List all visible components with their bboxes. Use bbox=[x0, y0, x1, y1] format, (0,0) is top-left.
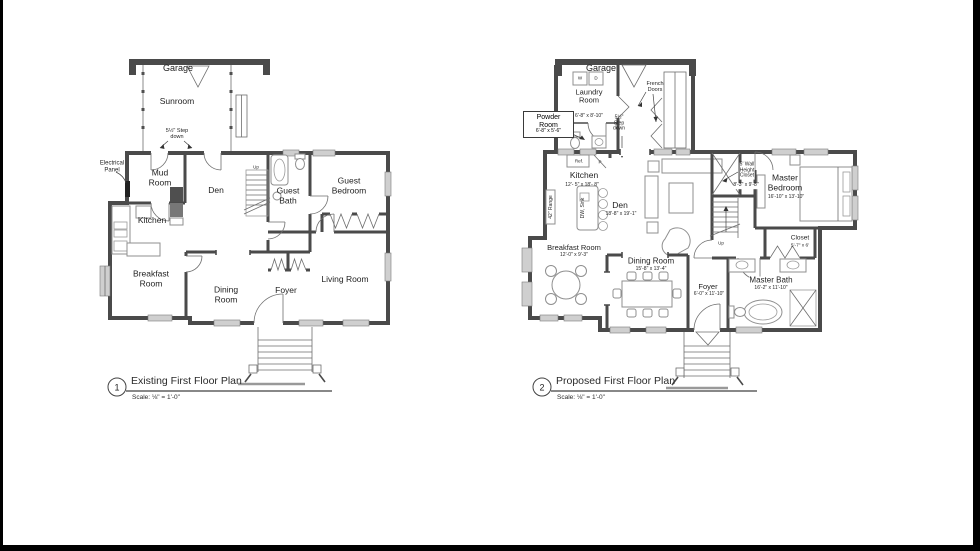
appliance-label-dryer: D bbox=[594, 75, 597, 80]
sheet-border-right bbox=[973, 0, 980, 551]
plan-number-badge-existing: 1 bbox=[108, 378, 127, 397]
dim-label-dining: 15'-8" x 13'-4" bbox=[636, 267, 667, 273]
room-label-dining-proposed: Dining Room bbox=[628, 258, 674, 267]
room-label-breakfast-existing: Breakfast Room bbox=[133, 269, 169, 288]
annotation-step-down-existing: 5½" Step down bbox=[166, 128, 188, 140]
appliance-label-dw-sink: DW, Sink bbox=[581, 198, 587, 219]
annotation-up-existing: Up bbox=[253, 164, 259, 169]
appliance-label-range: 42" Range bbox=[549, 195, 555, 218]
room-label-breakfast-proposed: Breakfast Room bbox=[547, 244, 601, 252]
room-label-powder-room: Powder Room bbox=[525, 114, 572, 129]
room-label-den-existing: Den bbox=[208, 186, 224, 196]
annotation-step-down-proposed: 5½" Step down bbox=[613, 116, 625, 133]
room-label-kitchen-existing: Kitchen bbox=[138, 216, 166, 226]
room-label-master-bedroom: Master Bedroom bbox=[768, 173, 803, 192]
appliance-label-pantry: P bbox=[598, 159, 601, 164]
plan-title-proposed: Proposed First Floor Plan bbox=[556, 375, 675, 387]
room-label-guest-bath: Guest Bath bbox=[277, 186, 300, 205]
room-label-master-bath: Master Bath bbox=[749, 277, 792, 286]
dim-label-kitchen: 12'- 5" x 18'- 8" bbox=[565, 183, 599, 189]
room-label-dining-existing: Dining Room bbox=[214, 285, 238, 304]
room-label-guest-bedroom: Guest Bedroom bbox=[332, 176, 367, 195]
dim-label-breakfast: 12'-0" x 9'-3" bbox=[560, 253, 588, 259]
annotation-powder-room-box: Powder Room 6'-8" x 5'-6" bbox=[523, 111, 574, 138]
annotation-up-proposed: Up bbox=[718, 240, 724, 245]
room-label-den-proposed: Den bbox=[612, 201, 628, 211]
floor-plan-sheet: Garage Sunroom 5½" Step down Electrical … bbox=[0, 0, 980, 551]
garage-door-swing bbox=[622, 65, 646, 87]
sheet-border-bottom bbox=[0, 545, 980, 551]
annotation-wall-height-closet: 5' Wall Height Closet bbox=[740, 163, 755, 180]
room-label-kitchen-proposed: Kitchen bbox=[570, 171, 598, 181]
sheet-border-left bbox=[0, 0, 3, 551]
appliance-label-washer: W bbox=[578, 75, 582, 80]
room-label-mud-room: Mud Room bbox=[149, 168, 172, 187]
plan-number-badge-proposed: 2 bbox=[533, 378, 552, 397]
proposed-stairs bbox=[710, 198, 740, 238]
dim-label-laundry: 6'-8" x 8'-10" bbox=[575, 114, 603, 120]
plan-scale-existing: Scale: ⅛" = 1'-0" bbox=[132, 394, 180, 401]
dim-label-master-closet: 5'-7" x 6' bbox=[791, 243, 809, 248]
room-label-garage-proposed: Garage bbox=[586, 63, 616, 73]
existing-stairs bbox=[244, 170, 270, 216]
dim-label-wall-height-closet: 8'-3" x 9'-8" bbox=[733, 183, 758, 189]
existing-front-steps bbox=[238, 327, 325, 384]
plan-scale-proposed: Scale: ⅛" = 1'-0" bbox=[557, 394, 605, 401]
room-label-living-room: Living Room bbox=[321, 275, 368, 285]
room-label-foyer-proposed: Foyer bbox=[698, 283, 717, 291]
plan-title-existing: Existing First Floor Plan bbox=[131, 375, 242, 387]
room-label-garage-existing: Garage bbox=[163, 63, 193, 73]
proposed-plan-geometry bbox=[522, 59, 858, 391]
dim-label-master-bedroom: 16'-10" x 13'-10" bbox=[768, 195, 804, 201]
master-bath-fixtures bbox=[729, 259, 816, 326]
room-label-laundry: Laundry Room bbox=[575, 89, 602, 106]
annotation-electrical-panel: Electrical Panel bbox=[100, 160, 124, 173]
dim-label-den: 18'-8" x 19'-1" bbox=[606, 212, 637, 218]
dim-label-master-bath: 16'-2" x 11'-10" bbox=[754, 286, 787, 292]
dim-label-foyer: 6'-0" x 11'-10" bbox=[694, 292, 724, 298]
den-furniture bbox=[645, 159, 722, 256]
dim-label-powder-room: 6'-8" x 5'-6" bbox=[525, 129, 572, 135]
appliance-label-refrigerator: Ref. bbox=[575, 158, 583, 163]
breakfast-furniture bbox=[546, 266, 587, 305]
dining-furniture bbox=[613, 272, 681, 317]
room-label-sunroom: Sunroom bbox=[160, 97, 195, 107]
annotation-french-doors: French Doors bbox=[646, 81, 663, 93]
room-label-master-closet: Closet bbox=[791, 234, 809, 241]
room-label-foyer-existing: Foyer bbox=[275, 286, 297, 296]
